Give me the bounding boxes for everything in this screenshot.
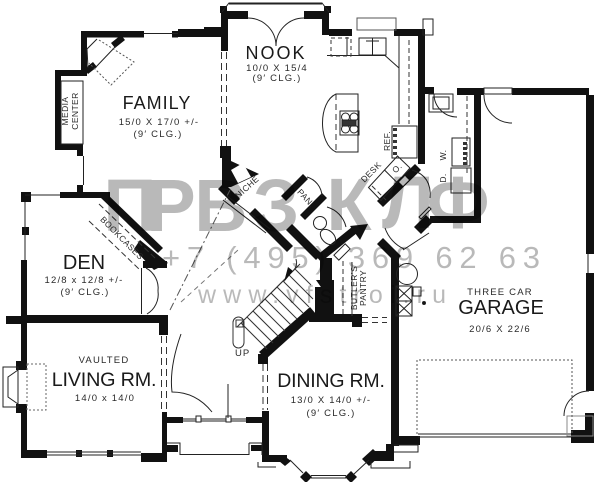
svg-text:VAULTED: VAULTED xyxy=(79,355,130,366)
svg-text:UP: UP xyxy=(235,348,250,359)
svg-text:LIVING RM.: LIVING RM. xyxy=(52,369,157,391)
svg-text:(9′ CLG.): (9′ CLG.) xyxy=(60,287,109,298)
svg-text:В: В xyxy=(194,164,247,247)
svg-text:REF.: REF. xyxy=(382,131,392,151)
svg-text:15/0 X 17/0 +/-: 15/0 X 17/0 +/- xyxy=(119,117,200,128)
svg-text:FAMILY: FAMILY xyxy=(123,93,192,113)
svg-text:www.vfstroi.ru: www.vfstroi.ru xyxy=(197,281,446,309)
svg-text:Р: Р xyxy=(146,164,195,247)
svg-text:CENTER: CENTER xyxy=(70,92,80,129)
svg-text:DINING RM.: DINING RM. xyxy=(277,370,384,392)
svg-text:W.: W. xyxy=(438,150,448,161)
svg-text:20/6 X 22/6: 20/6 X 22/6 xyxy=(469,324,531,335)
svg-text:(9′ CLG.): (9′ CLG.) xyxy=(252,73,301,84)
svg-text:+7 (495) 369 62 63: +7 (495) 369 62 63 xyxy=(162,240,540,275)
svg-text:DEN: DEN xyxy=(63,252,105,274)
svg-text:14/0 x 14/0: 14/0 x 14/0 xyxy=(75,393,135,404)
svg-text:З: З xyxy=(253,164,299,247)
svg-text:NOOK: NOOK xyxy=(245,43,306,63)
svg-text:К: К xyxy=(326,163,372,246)
svg-text:Ф: Ф xyxy=(426,161,489,244)
svg-text:(9′ CLG.): (9′ CLG.) xyxy=(133,129,182,140)
svg-text:(9′ CLG.): (9′ CLG.) xyxy=(306,408,355,419)
svg-text:GARAGE: GARAGE xyxy=(458,297,544,319)
svg-text:MEDIA: MEDIA xyxy=(60,97,70,126)
svg-text:12/8 x 12/8 +/-: 12/8 x 12/8 +/- xyxy=(45,275,124,286)
svg-text:13/0 X 14/0 +/-: 13/0 X 14/0 +/- xyxy=(291,395,372,406)
